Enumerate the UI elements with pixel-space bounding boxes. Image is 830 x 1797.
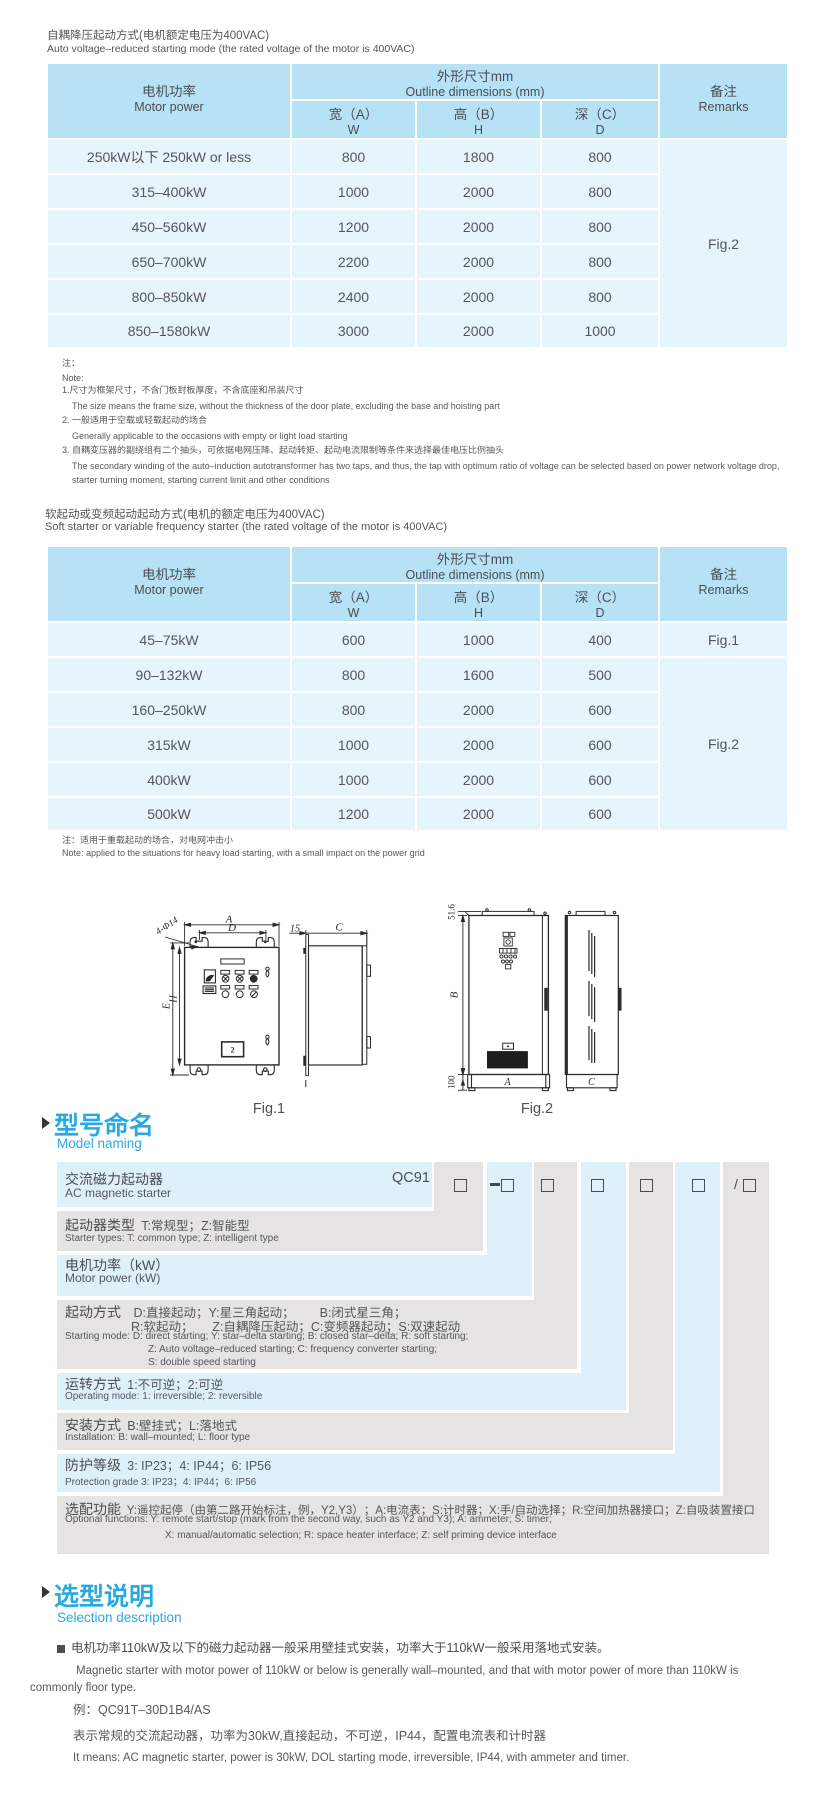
svg-text:D: D <box>227 922 236 934</box>
svg-text:2: 2 <box>231 1046 235 1055</box>
svg-text:A: A <box>503 1077 511 1088</box>
svg-text:Fig.2: Fig.2 <box>521 1101 553 1117</box>
svg-text:C: C <box>588 1077 595 1088</box>
svg-text:E: E <box>162 1003 173 1010</box>
svg-text:4-Φ14: 4-Φ14 <box>154 916 180 938</box>
svg-text:15: 15 <box>290 924 300 935</box>
svg-text:B: B <box>449 991 461 998</box>
svg-text:C: C <box>335 922 343 934</box>
svg-text:100: 100 <box>447 1075 457 1089</box>
svg-text:51.6: 51.6 <box>447 904 457 920</box>
svg-text:H: H <box>169 995 180 1004</box>
svg-text:Fig.1: Fig.1 <box>253 1101 285 1117</box>
